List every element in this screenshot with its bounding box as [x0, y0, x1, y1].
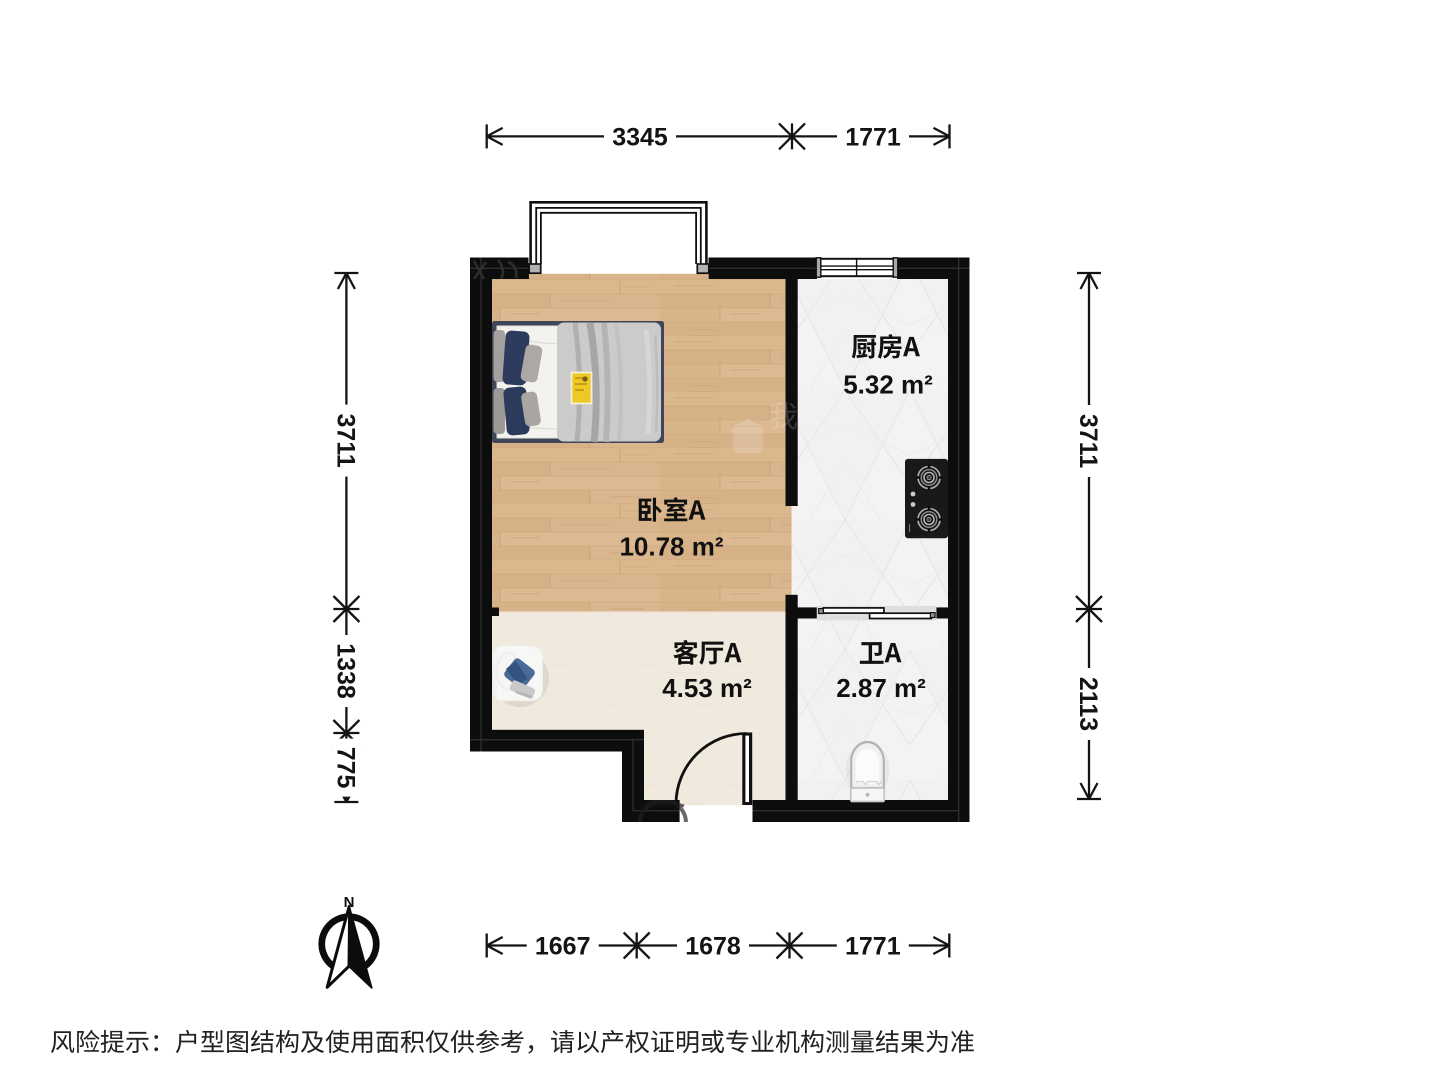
- svg-text:1338: 1338: [331, 643, 359, 699]
- svg-text:2113: 2113: [1074, 677, 1102, 731]
- svg-text:1771: 1771: [845, 123, 901, 151]
- svg-text:1667: 1667: [535, 933, 591, 961]
- svg-text:775: 775: [331, 747, 359, 789]
- svg-text:3345: 3345: [612, 123, 668, 151]
- svg-text:4.53 m²: 4.53 m²: [662, 673, 752, 703]
- svg-text:10.78 m²: 10.78 m²: [619, 531, 723, 561]
- svg-text:2.87 m²: 2.87 m²: [836, 673, 926, 703]
- svg-text:N: N: [344, 894, 355, 911]
- svg-text:1771: 1771: [845, 933, 901, 961]
- svg-text:5.32 m²: 5.32 m²: [843, 370, 933, 400]
- svg-text:3711: 3711: [331, 413, 359, 467]
- svg-text:1678: 1678: [685, 933, 741, 961]
- svg-text:3711: 3711: [1074, 414, 1102, 468]
